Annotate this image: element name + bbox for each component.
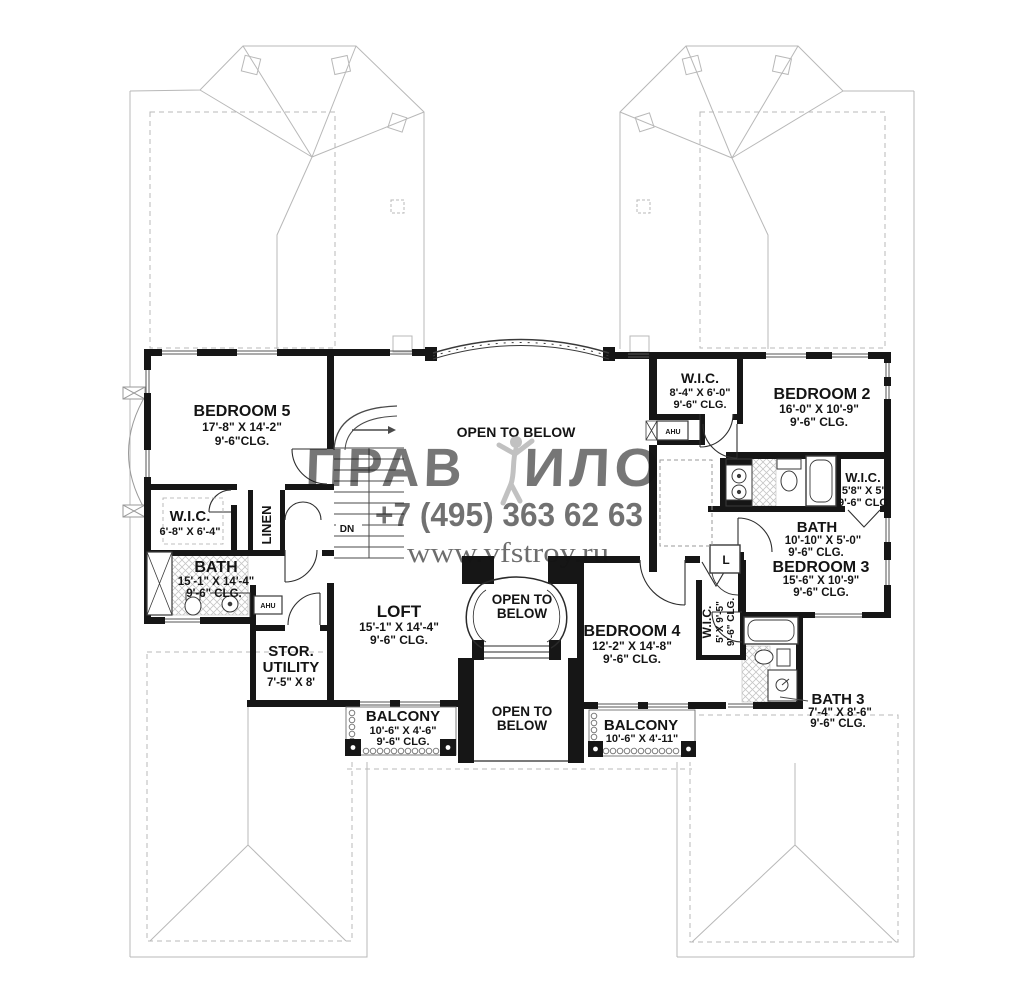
- label-bath3-clg: 9'-6" CLG.: [810, 718, 865, 730]
- watermark-brand-left: ПРАВ: [305, 438, 467, 498]
- label-open-below-bot2: BELOW: [497, 718, 548, 733]
- watermark-website: www.vfstroy.ru: [407, 537, 609, 569]
- label-wic3-dims: 5'8" X 5': [842, 485, 885, 497]
- label-wic4-name: W.I.C.: [700, 606, 714, 639]
- label-bath-master-clg: 9'-6" CLG.: [186, 588, 241, 600]
- label-wic3-clg: 9'-6" CLG: [838, 497, 888, 509]
- floor-plan-page: BEDROOM 5 17'-8" X 14'-2" 9'-6"CLG. W.I.…: [0, 0, 1019, 1000]
- label-bath-master-name: BATH: [194, 559, 237, 576]
- label-bedroom5-name: BEDROOM 5: [194, 403, 291, 420]
- label-wic2-name: W.I.C.: [681, 370, 719, 386]
- label-loft-name: LOFT: [377, 602, 422, 621]
- label-bedroom5-clg: 9'-6"CLG.: [215, 434, 270, 448]
- label-bedroom3-clg: 9'-6" CLG.: [793, 587, 848, 599]
- label-bedroom4-dims: 12'-2" X 14'-8": [592, 639, 672, 653]
- label-balcony-right-name: BALCONY: [604, 717, 678, 734]
- label-wic5-dims: 6'-8" X 6'-4": [160, 526, 221, 538]
- label-wic3-name: W.I.C.: [845, 470, 880, 485]
- bay-window: [123, 387, 147, 517]
- label-open-below-mid2: BELOW: [497, 606, 548, 621]
- label-stor-line2: UTILITY: [263, 659, 320, 676]
- label-wic4-clg: 9'-6" CLG.: [726, 598, 737, 646]
- label-wic2-clg: 9'-6" CLG.: [673, 399, 726, 411]
- label-loft-dims: 15'-1" X 14'-4": [359, 620, 439, 634]
- label-open-below-mid1: OPEN TO: [492, 592, 553, 607]
- label-bedroom4-clg: 9'-6" CLG.: [603, 652, 661, 666]
- label-bath2-name: BATH: [797, 519, 838, 536]
- label-bedroom4-name: BEDROOM 4: [584, 623, 681, 640]
- watermark-phone: +7 (495) 363 62 63: [375, 496, 643, 533]
- label-balcony-left-name: BALCONY: [366, 708, 440, 725]
- label-bedroom5-dims: 17'-8" X 14'-2": [202, 420, 282, 434]
- label-stor-line1: STOR.: [268, 643, 314, 660]
- label-bath2-clg: 9'-6" CLG.: [788, 547, 843, 559]
- label-l-closet: L: [722, 553, 729, 567]
- label-open-below-bot1: OPEN TO: [492, 704, 553, 719]
- label-bedroom2-name: BEDROOM 2: [774, 386, 871, 403]
- label-bedroom3-dims: 15'-6" X 10'-9": [783, 575, 859, 587]
- label-bedroom3-name: BEDROOM 3: [773, 559, 870, 576]
- label-linen: LINEN: [259, 506, 274, 545]
- label-ahu-left: AHU: [260, 603, 275, 610]
- label-bath-master-dims: 15'-1" X 14'-4": [178, 576, 254, 588]
- label-bedroom2-clg: 9'-6" CLG.: [790, 415, 848, 429]
- floor-plan-drawing: BEDROOM 5 17'-8" X 14'-2" 9'-6"CLG. W.I.…: [0, 0, 1019, 1000]
- label-balcony-left-clg: 9'-6" CLG.: [376, 736, 429, 748]
- label-wic4-dims: 5' X 9'-5": [715, 601, 726, 643]
- label-ahu-right: AHU: [665, 429, 680, 436]
- label-stor-dims: 7'-5" X 8': [267, 677, 315, 689]
- label-wic2-dims: 8'-4" X 6'-0": [670, 387, 731, 399]
- label-dn: DN: [340, 524, 354, 535]
- label-bath2-dims: 10'-10" X 5'-0": [785, 535, 861, 547]
- label-balcony-right-dims: 10'-6" X 4'-11": [606, 733, 679, 745]
- label-bath3-name: BATH 3: [811, 691, 864, 708]
- label-wic5-name: W.I.C.: [170, 508, 211, 525]
- watermark-brand-right: ИЛО: [523, 438, 665, 498]
- label-loft-clg: 9'-6" CLG.: [370, 633, 428, 647]
- label-bedroom2-dims: 16'-0" X 10'-9": [779, 402, 859, 416]
